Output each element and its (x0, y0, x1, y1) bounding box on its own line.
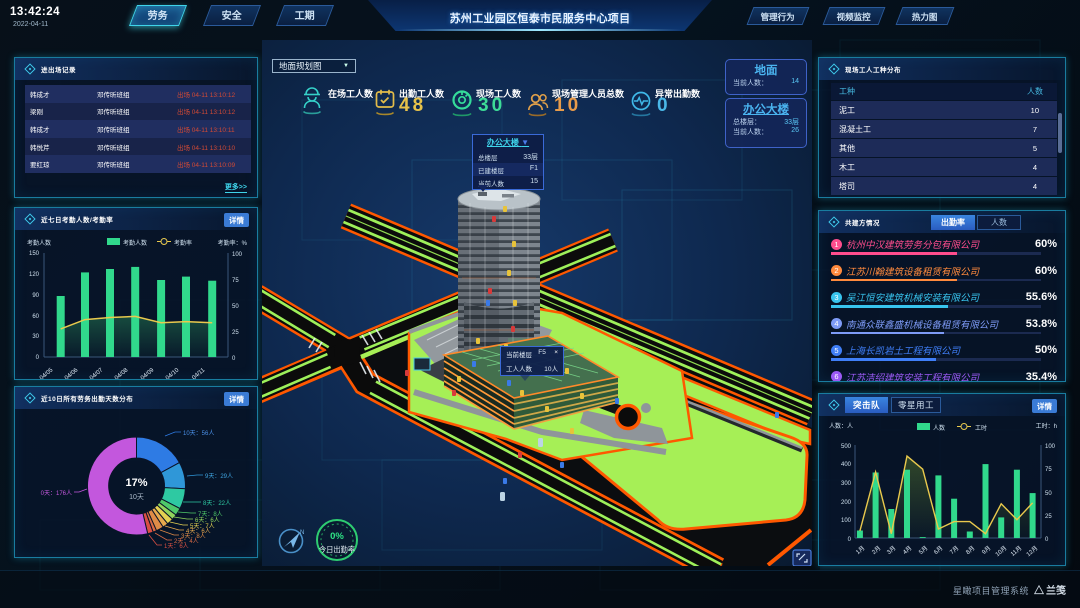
svg-text:2月: 2月 (871, 545, 883, 556)
svg-text:今日出勤率: 今日出勤率 (319, 545, 355, 554)
svg-text:考勤人数: 考勤人数 (27, 239, 51, 247)
svg-text:工时: 工时 (975, 424, 987, 432)
svg-text:500: 500 (841, 444, 852, 450)
svg-text:考勤率：%: 考勤率：% (218, 239, 248, 247)
svg-text:04/05: 04/05 (39, 367, 55, 379)
svg-text:3月: 3月 (886, 545, 898, 556)
svg-text:0: 0 (232, 356, 236, 362)
svg-text:考勤率: 考勤率 (174, 239, 192, 247)
svg-text:8月: 8月 (965, 545, 977, 556)
svg-text:04/09: 04/09 (140, 367, 156, 379)
svg-text:9天：29人: 9天：29人 (205, 473, 233, 480)
svg-text:30: 30 (32, 334, 39, 340)
svg-text:75: 75 (232, 278, 239, 284)
svg-text:11月: 11月 (1009, 545, 1023, 558)
svg-text:7天：8人: 7天：8人 (198, 511, 223, 518)
svg-text:人数: 人数 (933, 424, 945, 432)
svg-text:75: 75 (1045, 467, 1052, 473)
svg-text:04/08: 04/08 (114, 367, 130, 379)
svg-text:0: 0 (36, 355, 40, 361)
svg-text:1月: 1月 (855, 545, 867, 556)
svg-text:120: 120 (29, 272, 40, 278)
svg-text:8天：22人: 8天：22人 (203, 500, 231, 507)
svg-text:04/06: 04/06 (64, 367, 80, 379)
svg-text:100: 100 (1045, 444, 1056, 450)
svg-text:0%: 0% (330, 531, 344, 542)
svg-text:150: 150 (29, 251, 40, 257)
svg-text:10天: 10天 (129, 493, 144, 501)
svg-text:17%: 17% (125, 477, 147, 489)
svg-text:6月: 6月 (933, 545, 945, 556)
svg-text:90: 90 (32, 293, 39, 299)
svg-text:6天：6人: 6天：6人 (195, 517, 220, 524)
svg-text:7月: 7月 (949, 545, 961, 556)
svg-text:100: 100 (232, 252, 243, 258)
svg-text:0: 0 (848, 537, 852, 543)
svg-text:04/07: 04/07 (89, 367, 105, 379)
svg-text:60: 60 (32, 314, 39, 320)
svg-text:25: 25 (1045, 514, 1052, 520)
svg-text:4月: 4月 (902, 545, 914, 556)
svg-text:9月: 9月 (981, 545, 993, 556)
svg-text:200: 200 (841, 500, 852, 506)
svg-text:10月: 10月 (994, 545, 1008, 559)
svg-text:10天：56人: 10天：56人 (183, 430, 214, 437)
svg-text:0天：176人: 0天：176人 (41, 490, 72, 497)
svg-text:工时：h: 工时：h (1036, 422, 1057, 430)
svg-text:N: N (300, 530, 304, 536)
svg-text:1天：6人: 1天：6人 (164, 543, 189, 550)
svg-text:人数：人: 人数：人 (829, 422, 853, 430)
svg-text:50: 50 (232, 304, 239, 310)
svg-text:12月: 12月 (1025, 545, 1039, 559)
svg-text:04/10: 04/10 (165, 367, 181, 379)
svg-text:100: 100 (841, 518, 852, 524)
svg-text:0: 0 (1045, 537, 1049, 543)
svg-text:50: 50 (1045, 491, 1052, 497)
svg-text:5月: 5月 (918, 545, 930, 556)
svg-text:25: 25 (232, 330, 239, 336)
svg-text:300: 300 (841, 481, 852, 487)
svg-text:04/11: 04/11 (191, 367, 207, 379)
svg-text:考勤人数: 考勤人数 (123, 239, 147, 247)
svg-text:400: 400 (841, 462, 852, 468)
